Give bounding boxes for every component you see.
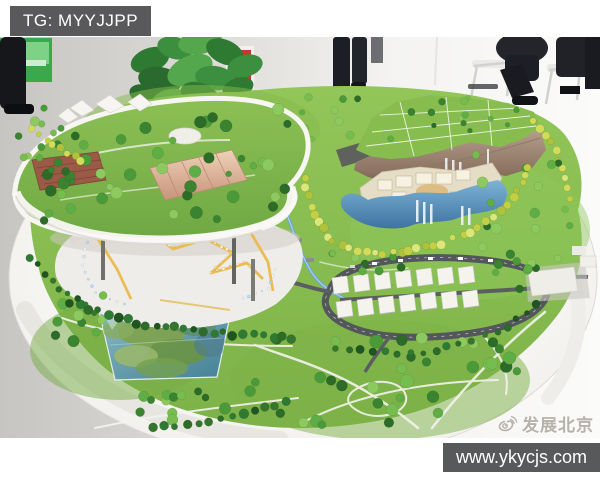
watermark: 发展北京	[498, 411, 594, 436]
deck-column	[251, 259, 255, 301]
watermark-label: 发展北京	[522, 411, 594, 436]
weibo-logo-icon	[498, 415, 518, 433]
screenshot: TG: MYYJJPP 发展北京 www.ykycjs.com	[0, 0, 600, 480]
url-bar-label: www.ykycjs.com	[456, 447, 587, 467]
url-bar: www.ykycjs.com	[443, 443, 600, 472]
tag-badge-label: TG: MYYJJPP	[23, 11, 138, 30]
scale-model-scene	[0, 37, 600, 438]
tag-badge: TG: MYYJJPP	[10, 6, 151, 36]
exhibition-photo	[0, 37, 600, 438]
